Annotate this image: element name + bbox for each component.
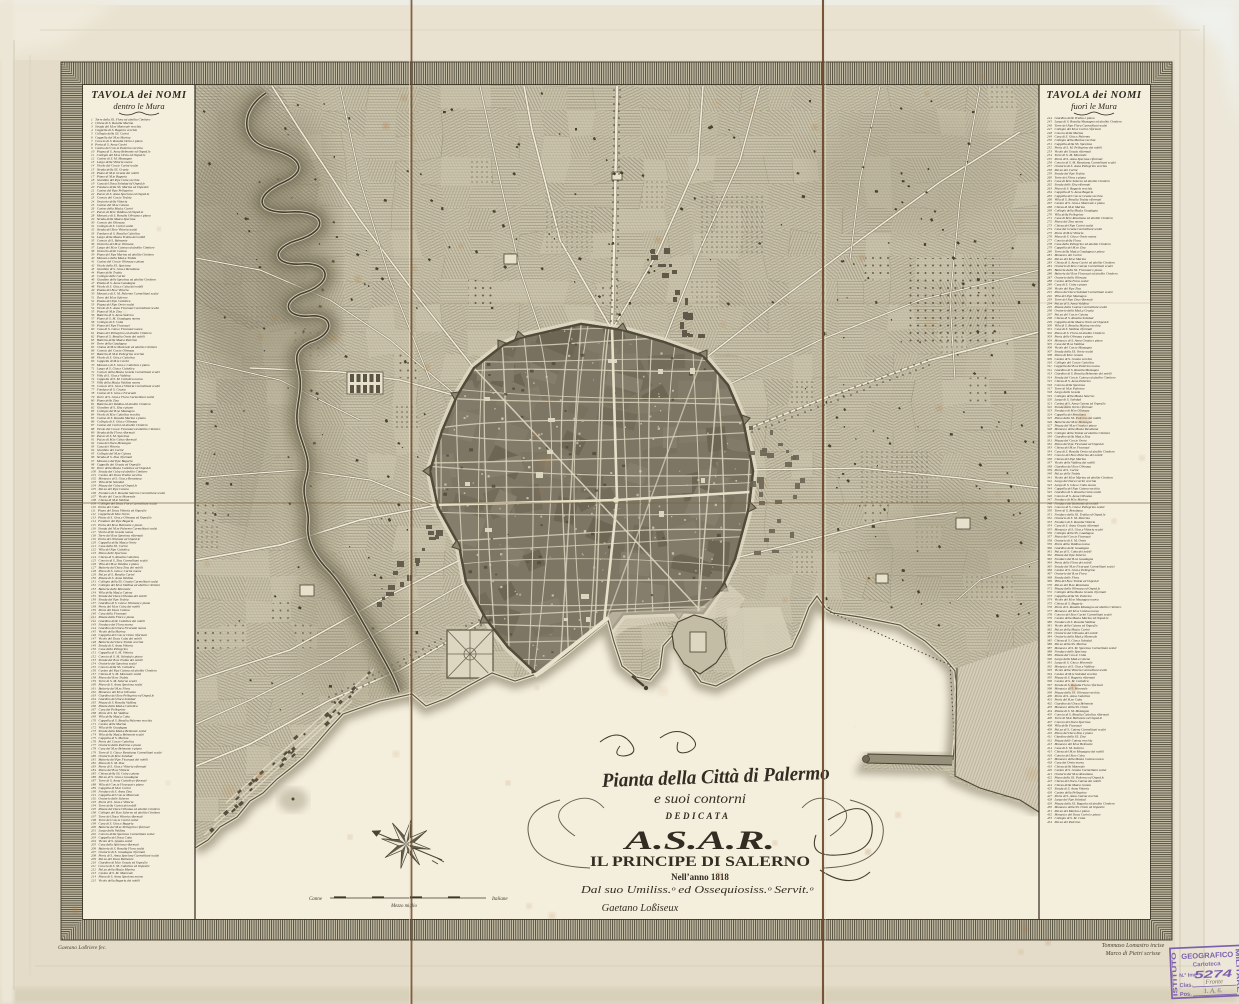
svg-text:Gaetano Loßiseux: Gaetano Loßiseux [602,903,679,914]
svg-text:Fronte: Fronte [1204,978,1223,986]
svg-text:e suoi contorni: e suoi contorni [654,791,746,806]
svg-text:IL PRINCIPE DI SALERNO: IL PRINCIPE DI SALERNO [590,854,810,870]
svg-text:Gaetano Loßriere fec.: Gaetano Loßriere fec. [58,944,107,951]
svg-text:Clas.: Clas. [1179,982,1193,989]
svg-text:Mezzo miglio: Mezzo miglio [390,904,417,909]
svg-text:Pos.: Pos. [1180,992,1193,999]
svg-text:dentro le Mura: dentro le Mura [113,101,164,111]
svg-text:TAVOLA dei NOMI: TAVOLA dei NOMI [1046,90,1141,101]
svg-text:215Vicolo della Bagaria dei no: 215Vicolo della Bagaria dei nobili [91,878,140,882]
svg-text:1. A. 6.: 1. A. 6. [1204,987,1223,995]
svg-text:Dal suo Umiliss.ᵒ ed Ossequios: Dal suo Umiliss.ᵒ ed Ossequiosiss.ᵒ Serv… [580,885,815,896]
svg-text:Cartoteca: Cartoteca [1193,961,1222,968]
svg-text:Tommaso Lomastro incise: Tommaso Lomastro incise [1102,943,1165,949]
svg-text:TAVOLA dei NOMI: TAVOLA dei NOMI [91,90,186,101]
svg-text:DEDICATA: DEDICATA [664,811,730,821]
svg-text:Canne: Canne [309,897,323,902]
svg-text:A.S.A.R.: A.S.A.R. [622,826,775,855]
svg-text:Marco di Pietri scrisse: Marco di Pietri scrisse [1105,951,1161,957]
svg-text:Italiane: Italiane [491,897,508,902]
svg-text:fuorì le Mura: fuorì le Mura [1071,101,1117,111]
